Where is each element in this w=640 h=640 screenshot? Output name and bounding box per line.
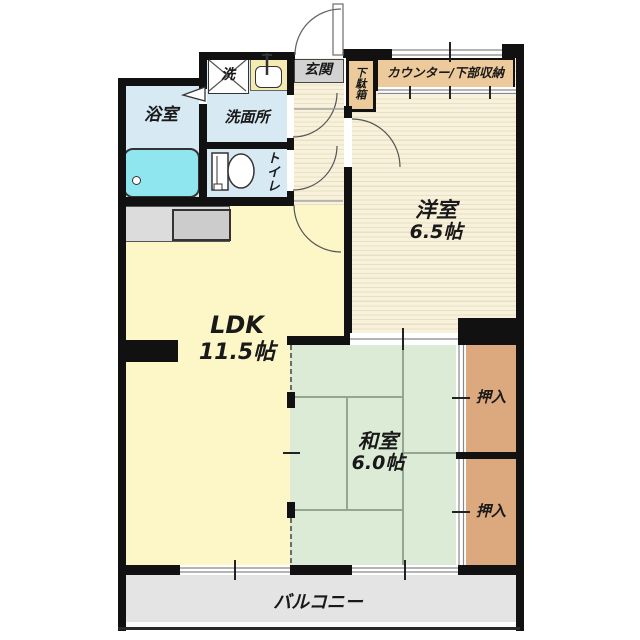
japanese-room-size: 6.0帖: [318, 452, 438, 476]
entrance-label: 玄関: [294, 61, 342, 80]
washer-label: 洗: [208, 65, 248, 85]
bathroom-label: 浴室: [111, 104, 211, 128]
closet-upper-label: 押入: [466, 388, 516, 408]
western-room-label: 洋室: [376, 197, 496, 223]
western-room-size: 6.5帖: [376, 221, 496, 245]
toilet-door-arc: [293, 146, 337, 190]
shoe-cabinet-label: 下駄箱: [349, 60, 371, 106]
ldk-door-arc: [294, 205, 341, 252]
counter-edge-lines: [378, 90, 516, 94]
japanese-room-label: 和室: [318, 429, 438, 454]
front-door-leaf: [333, 4, 343, 55]
floor-plan: 浴室 洗面所 洗 トイレ 玄関 下駄箱 カウンター/下部収納 洋室 6.5帖 L…: [0, 0, 640, 640]
ldk-label: LDK: [157, 312, 317, 340]
western-room-door-arc: [352, 119, 400, 167]
ldk-size: 11.5帖: [157, 340, 317, 366]
washroom-label: 洗面所: [197, 106, 297, 130]
balcony-label: バルコニー: [218, 591, 418, 615]
symbols-overlay: [0, 0, 640, 640]
closet-slider-lines: [459, 345, 464, 565]
toilet-handle-icon: [214, 184, 222, 190]
closet-lower-label: 押入: [466, 502, 516, 522]
washroom-door-arc: [293, 93, 337, 137]
toilet-label: トイレ: [261, 146, 281, 198]
counter-label: カウンター/下部収納: [378, 64, 513, 82]
window-top-lines: [392, 50, 502, 55]
bathroom-door-icon: [183, 87, 205, 101]
toilet-bowl-icon: [228, 154, 254, 188]
